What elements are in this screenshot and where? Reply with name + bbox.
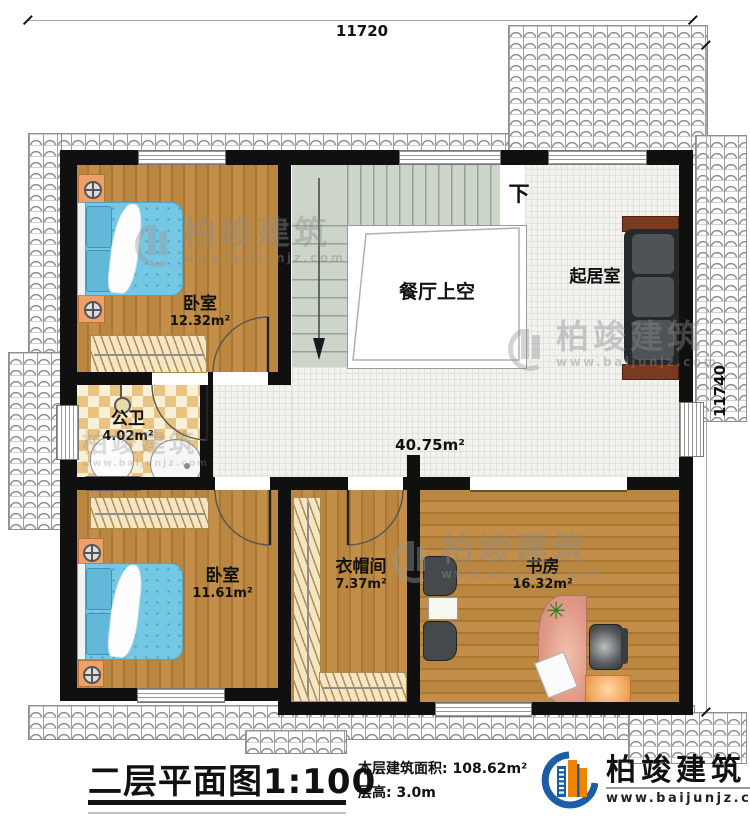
hall-area-label: 40.75m² bbox=[385, 437, 475, 454]
room-name: 衣帽间 bbox=[305, 558, 417, 578]
room-area: 11.61m² bbox=[165, 587, 280, 602]
info-area-label: 本层建筑面积: bbox=[358, 761, 448, 777]
dim-line-right bbox=[706, 45, 707, 713]
plan-info: 本层建筑面积: 108.62m² 层高: 3.0m bbox=[358, 758, 527, 806]
room-name: 卧室 bbox=[140, 295, 260, 315]
down-text: 下 bbox=[509, 182, 530, 206]
stair-down-label: 下 bbox=[505, 182, 533, 206]
room-name: 公卫 bbox=[88, 410, 168, 430]
room-area: 12.32m² bbox=[140, 315, 260, 330]
down-arrow-icon bbox=[313, 338, 325, 360]
dim-top-value: 11720 bbox=[332, 22, 392, 40]
room-area: 16.32m² bbox=[485, 578, 600, 593]
dim-right-value: 11740 bbox=[711, 361, 729, 421]
study-label: 书房 16.32m² bbox=[485, 558, 600, 592]
brand-block: 柏竣建筑 www.baijunjz.com bbox=[540, 750, 750, 810]
info-floor-line: 层高: 3.0m bbox=[358, 782, 527, 806]
door-arc bbox=[215, 490, 270, 545]
door-arc bbox=[348, 490, 403, 545]
living-label: 起居室 bbox=[545, 268, 645, 288]
room-name: 书房 bbox=[485, 558, 600, 578]
room-area: 40.75m² bbox=[395, 436, 465, 454]
title-underline bbox=[88, 800, 346, 805]
info-area-value: 108.62m² bbox=[452, 761, 527, 777]
title-block: 二层平面图1:100 本层建筑面积: 108.62m² 层高: 3.0m bbox=[0, 748, 750, 819]
room-area: 7.37m² bbox=[305, 578, 417, 593]
bath-label: 公卫 4.02m² bbox=[88, 410, 168, 444]
bedroom1-label: 卧室 12.32m² bbox=[140, 295, 260, 329]
plan-title-text: 二层平面图 bbox=[88, 762, 263, 802]
plan-title: 二层平面图1:100 bbox=[88, 754, 376, 803]
info-floor-label: 层高: bbox=[358, 785, 392, 801]
title-underline-thin bbox=[88, 812, 346, 814]
dim-line-top bbox=[28, 20, 693, 21]
void-label: 餐厅上空 bbox=[377, 282, 497, 304]
floor-plan: ✳ bbox=[0, 0, 750, 819]
info-area-line: 本层建筑面积: 108.62m² bbox=[358, 758, 527, 782]
brand-logo-icon bbox=[540, 750, 598, 810]
bedroom2-label: 卧室 11.61m² bbox=[165, 567, 280, 601]
room-name: 卧室 bbox=[165, 567, 280, 587]
info-floor-value: 3.0m bbox=[396, 785, 435, 801]
brand-name: 柏竣建筑 bbox=[606, 754, 750, 787]
brand-url: www.baijunjz.com bbox=[606, 787, 750, 806]
cloak-label: 衣帽间 7.37m² bbox=[305, 558, 417, 592]
room-area: 4.02m² bbox=[88, 430, 168, 445]
room-name: 起居室 bbox=[570, 267, 621, 287]
room-name: 餐厅上空 bbox=[399, 281, 475, 303]
